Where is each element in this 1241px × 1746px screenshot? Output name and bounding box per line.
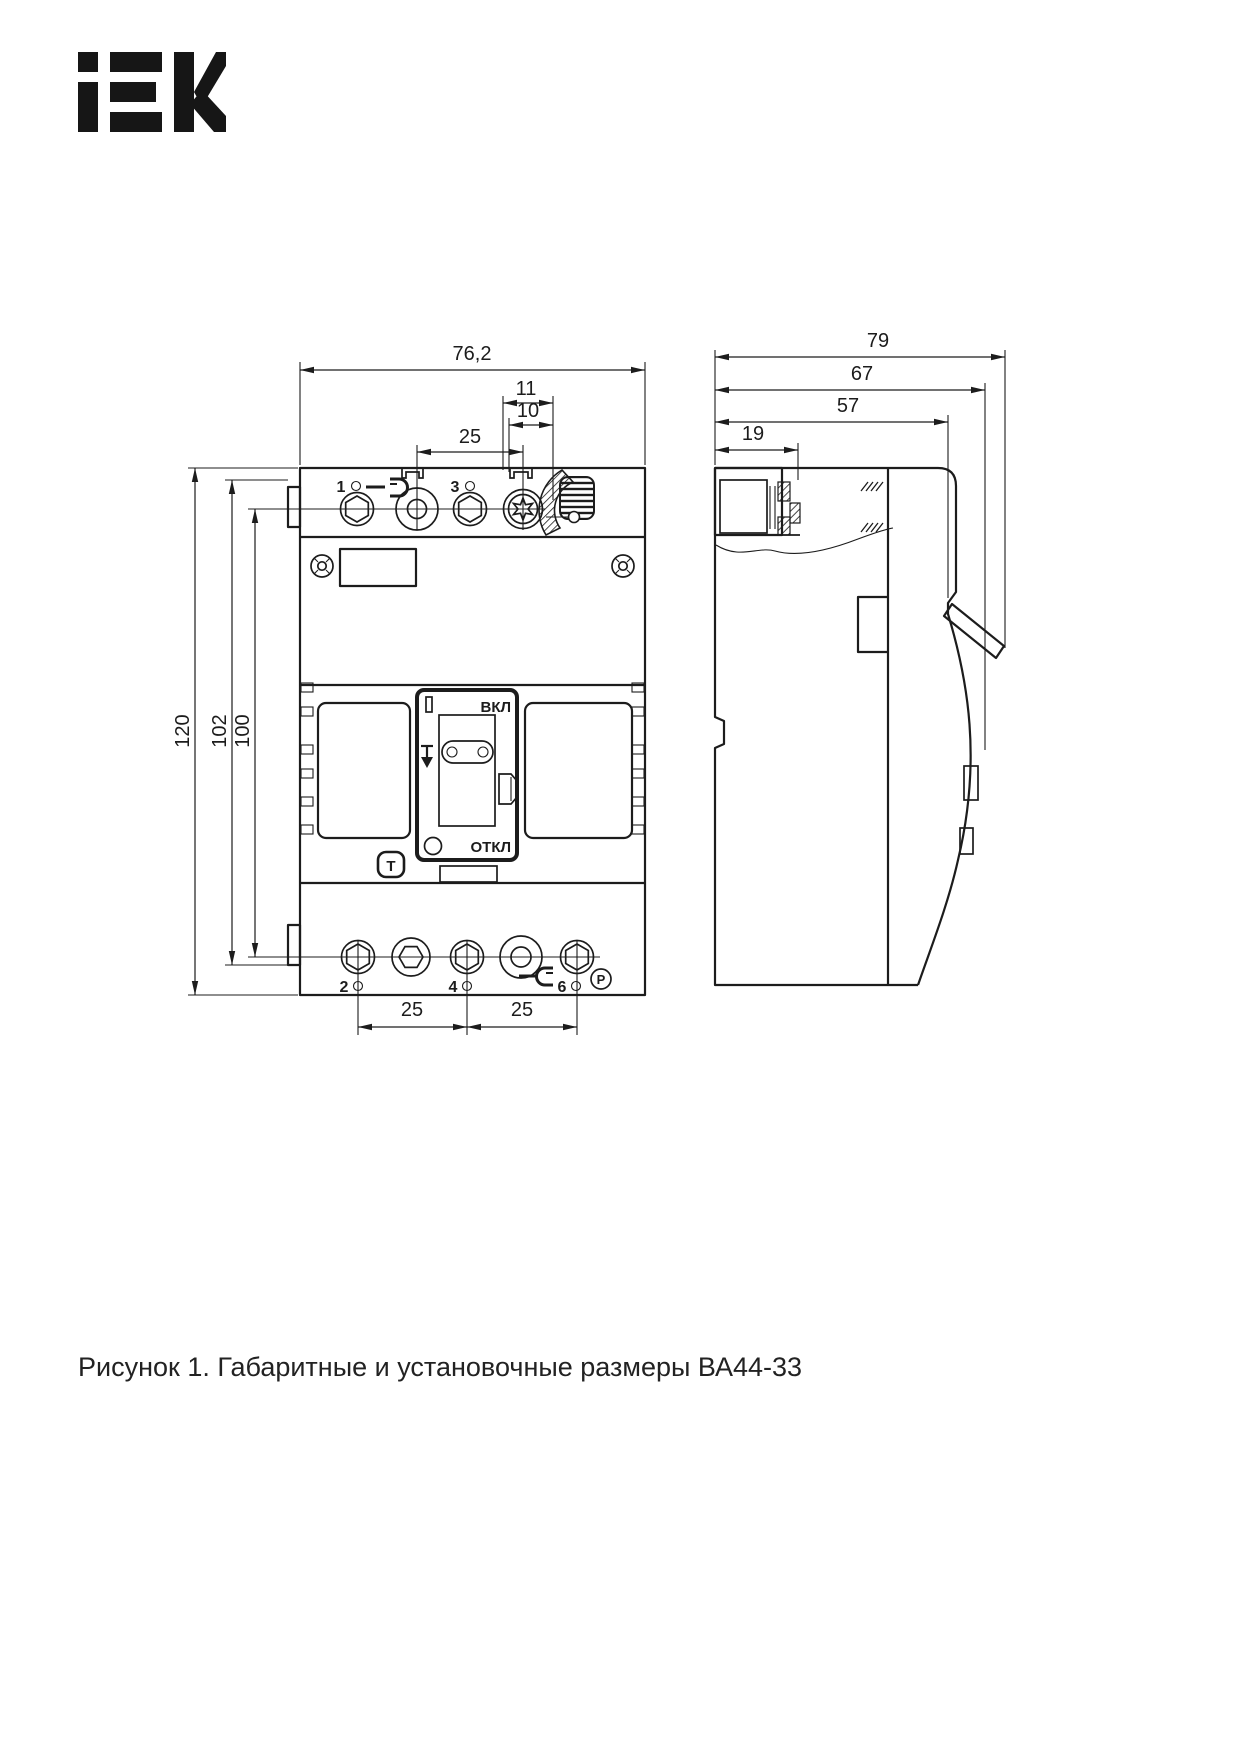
top-slot: [402, 468, 423, 478]
breaker-body-front: [300, 468, 645, 995]
p-marking-label: P: [597, 972, 606, 987]
down-arrow-icon: [421, 746, 433, 768]
dimension-drawing: 1 3: [0, 0, 1241, 1746]
toggle-handle[interactable]: [442, 741, 493, 763]
front-dimensions: 76,2 11 10 25 120: [172, 343, 645, 1035]
left-mount-tab: [288, 487, 300, 527]
figure-caption: Рисунок 1. Габаритные и установочные раз…: [78, 1352, 802, 1383]
reset-dot: [425, 838, 442, 855]
face-panel-left: [318, 703, 410, 838]
side-dimensions: 79 67 57 19: [715, 330, 1005, 750]
trip-latch: [499, 774, 517, 804]
terminal-label-1: 1: [337, 479, 346, 496]
left-mount-tab: [288, 925, 300, 965]
face-panel-right: [525, 703, 632, 838]
on-position-mark: [426, 697, 432, 712]
section-hatch: [778, 482, 790, 501]
dim-mount-b: 100: [232, 714, 254, 747]
test-button-label: T: [386, 858, 395, 875]
terminal-label-6: 6: [558, 979, 567, 996]
document-page: 1 3: [0, 0, 1241, 1746]
on-label: ВКЛ: [480, 699, 511, 716]
dim-pitch-bottom-2: 25: [511, 999, 533, 1021]
dim-dial-outer: 11: [516, 378, 537, 400]
section-hatch: [778, 517, 790, 535]
off-label: ОТКЛ: [470, 839, 511, 856]
dim-dial-inner: 10: [517, 400, 539, 422]
toggle-slot: [439, 715, 495, 826]
face-notch: [858, 597, 888, 652]
handle-pivot: [478, 747, 488, 757]
terminal-dot: [352, 482, 361, 491]
rating-label-window: [340, 549, 416, 586]
cover-screw: [311, 555, 333, 577]
breaker-body-side-front: [715, 468, 971, 985]
terminal-label-2: 2: [340, 979, 349, 996]
terminal-dot: [466, 482, 475, 491]
dim-depth-body: 67: [851, 363, 873, 385]
wire-clip-icon: [366, 479, 408, 496]
top-slot: [510, 468, 532, 478]
test-button[interactable]: T: [378, 852, 404, 877]
dim-width: 76,2: [453, 343, 492, 365]
dim-depth-overall: 79: [867, 330, 889, 352]
dial-center: [569, 512, 580, 523]
dim-pitch-top: 25: [459, 426, 481, 448]
vent-slots-right: [632, 683, 644, 834]
dim-mount-a: 102: [209, 714, 231, 747]
vent-slots-left: [301, 683, 313, 834]
cover-screw: [612, 555, 634, 577]
section-hatch: [790, 503, 800, 523]
dim-terminal: 19: [742, 423, 764, 445]
side-view: 79 67 57 19: [715, 330, 1005, 985]
trip-adjust-dial: [539, 470, 594, 535]
dim-pitch-bottom-1: 25: [401, 999, 423, 1021]
handle-pivot: [447, 747, 457, 757]
dim-height-overall: 120: [172, 714, 194, 747]
terminal-label-4: 4: [449, 979, 458, 996]
hatch-ticks: [861, 482, 883, 532]
p-marking: P: [591, 969, 611, 989]
dim-depth-front: 57: [837, 395, 859, 417]
front-view: 1 3: [172, 343, 645, 1035]
terminal-label-3: 3: [451, 479, 460, 496]
terminal-section: [715, 468, 800, 535]
recess-bottom-plate: [440, 866, 497, 882]
terminal-dot: [572, 982, 581, 991]
